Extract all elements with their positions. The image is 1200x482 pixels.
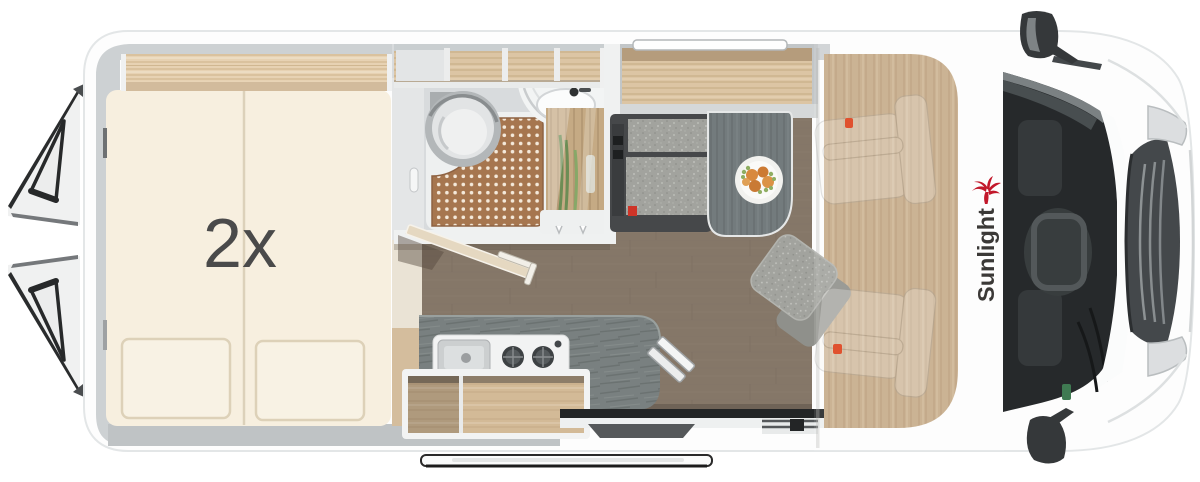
svg-text:Sunlight: Sunlight <box>973 208 999 302</box>
svg-text:2x: 2x <box>203 204 277 282</box>
